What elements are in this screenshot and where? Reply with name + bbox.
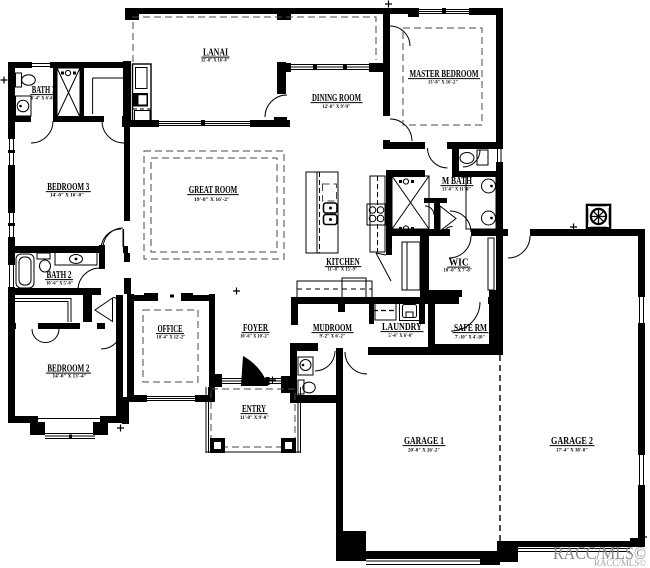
svg-text:14'-0" X 16'-0": 14'-0" X 16'-0" <box>50 193 84 199</box>
svg-text:10'-6" X 10'-2": 10'-6" X 10'-2" <box>240 334 269 340</box>
svg-text:13'-8" X 16'-2": 13'-8" X 16'-2" <box>428 80 458 86</box>
svg-text:11'-8" X 15'-9": 11'-8" X 15'-9" <box>328 267 358 273</box>
svg-text:10'-4" X 12'-2": 10'-4" X 12'-2" <box>157 335 186 341</box>
svg-text:7'-10" X 4'-10": 7'-10" X 4'-10" <box>455 335 485 341</box>
svg-text:6'-4" X 6'-0": 6'-4" X 6'-0" <box>31 96 55 102</box>
svg-text:20'-0" X 26'-2": 20'-0" X 26'-2" <box>408 448 440 454</box>
svg-text:17'-4" X 38'-8": 17'-4" X 38'-8" <box>556 448 588 454</box>
svg-text:19'-8" X 16'-2": 19'-8" X 16'-2" <box>194 197 230 203</box>
svg-text:10'-6" X 5'-0": 10'-6" X 5'-0" <box>46 281 73 287</box>
svg-text:32'-0" X 16'-8": 32'-0" X 16'-8" <box>201 58 229 64</box>
svg-text:13'-8" X 11'-0": 13'-8" X 11'-0" <box>442 187 471 193</box>
svg-text:11'-8" X 9'-0": 11'-8" X 9'-0" <box>240 415 269 421</box>
svg-text:10'-0" X 7'-8": 10'-0" X 7'-8" <box>444 268 473 274</box>
svg-text:12'-8" X 9'-9": 12'-8" X 9'-9" <box>323 104 351 110</box>
svg-text:9'-2" X 6'-2": 9'-2" X 6'-2" <box>320 334 346 340</box>
svg-text:RACC/MLS©: RACC/MLS© <box>594 558 646 568</box>
svg-text:14'-0" X 13'-4": 14'-0" X 13'-4" <box>53 374 87 380</box>
svg-text:5'-4" X 6'-0": 5'-4" X 6'-0" <box>389 333 414 339</box>
